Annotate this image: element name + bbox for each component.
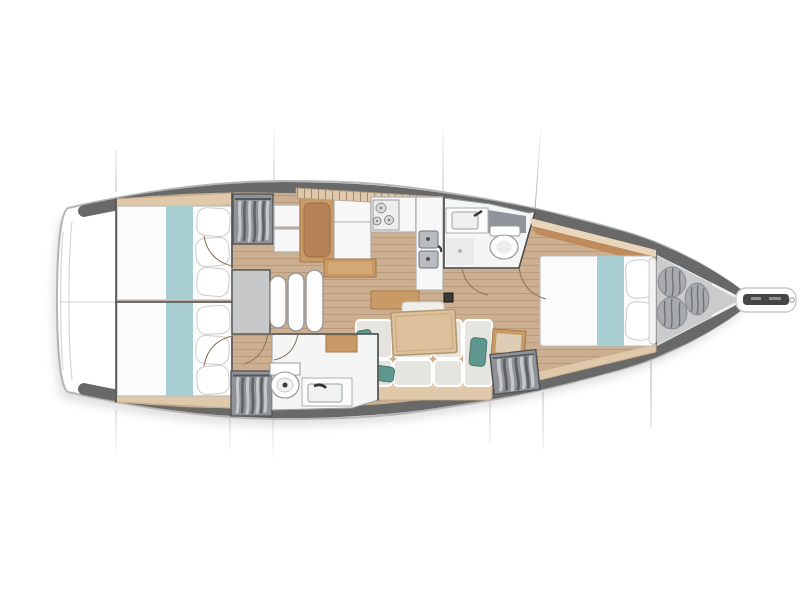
- bed-runner: [166, 206, 193, 300]
- pillow: [195, 335, 230, 365]
- aft-cabin-starboard: [116, 302, 232, 408]
- wardrobe-aft-port: [233, 194, 273, 244]
- companionway: [232, 270, 323, 334]
- sofa-backrest: [394, 360, 432, 386]
- companionway-step: [288, 273, 304, 331]
- floorplan-svg: [0, 0, 800, 600]
- nav-desk: [334, 197, 371, 261]
- pillow: [196, 305, 230, 335]
- toilet: [490, 226, 520, 259]
- stove: [373, 200, 399, 230]
- wardrobe-aft-starboard: [231, 371, 272, 416]
- sail-bag: [658, 267, 686, 297]
- sofa-backrest: [434, 360, 462, 386]
- sail-bag: [657, 297, 687, 329]
- pillow: [196, 365, 230, 396]
- companionway-step: [270, 276, 286, 328]
- cabinet: [274, 229, 300, 252]
- wardrobe-saloon: [490, 350, 540, 395]
- bow-anchor-fitting: [736, 288, 796, 312]
- toilet: [270, 363, 300, 398]
- head-locker: [326, 335, 357, 352]
- pillow: [196, 207, 230, 237]
- mast-foot: [444, 293, 453, 302]
- pillow: [195, 237, 230, 267]
- bed-runner: [166, 302, 193, 396]
- pillow: [196, 267, 230, 298]
- nav-seat-cushion: [304, 203, 330, 257]
- teal-pillow: [469, 337, 487, 366]
- anchor-roller: [743, 294, 789, 305]
- companionway-platform: [232, 270, 270, 334]
- cabinet: [274, 205, 300, 227]
- saloon-table: [391, 309, 457, 355]
- aft-head: [270, 334, 378, 410]
- bed-runner: [597, 256, 624, 346]
- section-line-top-slanted: [535, 126, 541, 210]
- sail-bag: [685, 283, 709, 315]
- boat-floorplan-canvas: [0, 0, 800, 600]
- headboard: [649, 258, 656, 344]
- companionway-step: [306, 270, 323, 332]
- shower-drain: [458, 249, 462, 253]
- aft-cabin-port: [116, 193, 232, 300]
